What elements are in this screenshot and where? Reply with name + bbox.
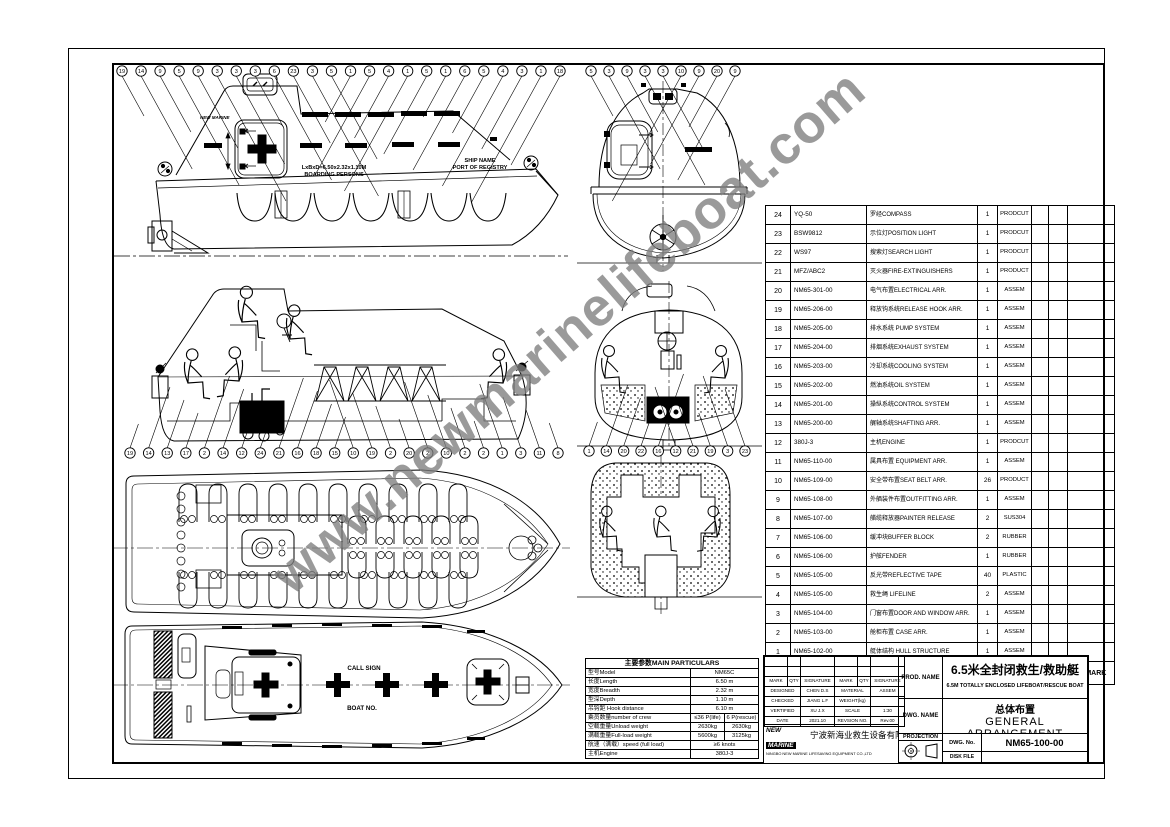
callout-number: 1 xyxy=(444,69,447,75)
callout-number: 5 xyxy=(178,69,181,75)
side-view-callouts: 1914959333623351541516543118 xyxy=(117,66,565,202)
parts-cell-name: 操纵系统CONTROL SYSTEM xyxy=(867,396,978,415)
seat-circle xyxy=(462,552,469,559)
parts-cell-rem xyxy=(1068,453,1115,472)
parts-cell-rem xyxy=(1068,377,1115,396)
callout-leader-line xyxy=(472,76,541,202)
projection-label: PROJECTION xyxy=(899,734,942,741)
cockpit-section-view: 114202216122119323 xyxy=(577,281,762,457)
callout-leader-line xyxy=(312,76,378,196)
parts-table-row: 12380J-3主机ENGINE1PRODCUT xyxy=(766,434,1115,453)
parts-cell-wt xyxy=(1049,453,1068,472)
parts-cell-code: NM65-106-00 xyxy=(791,529,867,548)
projection-symbol-icon xyxy=(899,741,943,761)
callout-number: 15 xyxy=(332,451,338,457)
seat-circle xyxy=(219,516,226,523)
callout-number: 9 xyxy=(159,69,162,75)
parts-cell-code: NM65-107-00 xyxy=(791,510,867,529)
parts-cell-name: 艏缆释放器PAINTER RELEASE xyxy=(867,510,978,529)
parts-cell-rem xyxy=(1068,415,1115,434)
seated-person-figure xyxy=(286,305,312,355)
parts-cell-rem xyxy=(1068,586,1115,605)
parts-cell-rem xyxy=(1068,434,1115,453)
parts-cell-mat: ASSEM xyxy=(998,396,1032,415)
callout-number: 16 xyxy=(294,451,300,457)
parts-cell-name: 排水系统 PUMP SYSTEM xyxy=(867,320,978,339)
parts-cell-code: NM65-301-00 xyxy=(791,282,867,301)
seat-circle xyxy=(309,516,316,523)
dwg-name-cell: 总体布置 GENERAL ARRANGEMENT xyxy=(942,698,1088,734)
parts-cell-code: YQ-50 xyxy=(791,206,867,225)
parts-cell-qty: 1 xyxy=(978,377,998,396)
parts-cell-no: 5 xyxy=(766,567,791,586)
callout-leader-line xyxy=(399,419,409,448)
signature-row: CHECKEDJIANG L.FWEIGHT(kg) xyxy=(765,697,905,707)
title-block: MARKQTYSIGNATUREMARKQTYSIGNATUREDESIGNED… xyxy=(763,655,1089,764)
particulars-value: 380J-3 xyxy=(691,750,758,758)
parts-cell-code: BSW9812 xyxy=(791,225,867,244)
particulars-value: ≤36 P(life) xyxy=(691,714,725,722)
parts-cell-mat: PLASTIC xyxy=(998,567,1032,586)
particulars-label: 乘员数量number of crew xyxy=(586,714,691,722)
parts-cell-rem xyxy=(1068,225,1115,244)
parts-cell-wt xyxy=(1049,624,1068,643)
parts-cell-name: 外舾装件布置OUTFITTING ARR. xyxy=(867,491,978,510)
callout-leader-line xyxy=(297,391,317,448)
callout-number: 12 xyxy=(239,451,245,457)
parts-cell-name: 属具布置 EQUIPMENT ARR. xyxy=(867,453,978,472)
callout-number: 5 xyxy=(330,69,333,75)
parts-cell-ws xyxy=(1032,472,1049,491)
parts-cell-name: 舱柜布置 CASE ARR. xyxy=(867,624,978,643)
parts-cell-no: 2 xyxy=(766,624,791,643)
callout-leader-line xyxy=(255,76,283,127)
vent-grille xyxy=(154,631,172,678)
parts-cell-code: MFZ/ABC2 xyxy=(791,263,867,282)
parts-cell-qty: 1 xyxy=(978,434,998,453)
folding-seat-frames xyxy=(314,365,446,401)
particulars-value: 2630kg xyxy=(725,723,758,731)
parts-cell-mat: SUS304 xyxy=(998,510,1032,529)
parts-cell-ws xyxy=(1032,415,1049,434)
side-window xyxy=(685,147,712,152)
parts-cell-qty: 1 xyxy=(978,415,998,434)
parts-cell-mat: ASSEM xyxy=(998,377,1032,396)
parts-cell-mat: ASSEM xyxy=(998,605,1032,624)
disk-file-label: DISK FILE xyxy=(942,751,982,763)
parts-cell-no: 23 xyxy=(766,225,791,244)
seat-circle xyxy=(414,552,421,559)
parts-cell-code: NM65-106-00 xyxy=(791,548,867,567)
callout-number: 3 xyxy=(254,69,257,75)
parts-cell-code: NM65-205-00 xyxy=(791,320,867,339)
parts-cell-wt xyxy=(1049,605,1068,624)
parts-table-row: 21MFZ/ABC2灭火器FIRE-EXTINGUISHERS1PRODUCT xyxy=(766,263,1115,282)
revision-empty-row xyxy=(765,657,905,667)
parts-cell-no: 9 xyxy=(766,491,791,510)
particulars-label: 满载重量Full-load weight xyxy=(586,732,691,740)
callout-number: 19 xyxy=(369,451,375,457)
seat-circle xyxy=(211,516,218,523)
seat-outlines xyxy=(179,484,478,608)
parts-cell-rem xyxy=(1068,529,1115,548)
product-name-cn: 6.5米全封闭救生/救助艇 xyxy=(943,661,1087,678)
side-door-icon xyxy=(235,120,287,178)
parts-cell-no: 14 xyxy=(766,396,791,415)
callout-number: 17 xyxy=(183,451,189,457)
parts-cell-rem xyxy=(1068,320,1115,339)
vent-grille xyxy=(154,692,172,738)
parts-cell-name: 罗经COMPASS xyxy=(867,206,978,225)
particulars-value: 1.10 m xyxy=(691,696,758,704)
seat-circle xyxy=(301,516,308,523)
dwg-name-label: DWG. NAME xyxy=(898,698,943,734)
callout-leader-line xyxy=(160,76,191,132)
parts-cell-qty: 1 xyxy=(978,244,998,263)
callout-leader-line xyxy=(413,76,465,170)
seat-circle xyxy=(211,572,218,579)
callout-number: 1 xyxy=(501,451,504,457)
parts-cell-qty: 40 xyxy=(978,567,998,586)
seat-circle xyxy=(189,516,196,523)
revision-empty-cell xyxy=(788,657,801,667)
particulars-label: 型号Model xyxy=(586,669,691,677)
parts-cell-rem xyxy=(1068,548,1115,567)
deck-hatch xyxy=(467,659,509,705)
parts-cell-mat: ASSEM xyxy=(998,339,1032,358)
parts-table-row: 10NM65-109-00安全带布置SEAT BELT ARR.26PRODUC… xyxy=(766,472,1115,491)
parts-cell-code: NM65-105-00 xyxy=(791,586,867,605)
front-view: 53933109209 xyxy=(577,63,762,280)
seat-circle xyxy=(378,538,385,545)
revision-empty-cell xyxy=(835,657,858,667)
parts-cell-mat: ASSEM xyxy=(998,282,1032,301)
particulars-value: 6.50 m xyxy=(691,678,758,686)
fender-scallops xyxy=(237,193,506,221)
particulars-value: 3125kg xyxy=(725,732,758,740)
parts-table-row: 15NM65-202-00燃油系统OIL SYSTEM1ASSEM xyxy=(766,377,1115,396)
callout-leader-line xyxy=(405,382,428,448)
parts-cell-code: NM65-104-00 xyxy=(791,605,867,624)
parts-table-row: 18NM65-205-00排水系统 PUMP SYSTEM1ASSEM xyxy=(766,320,1115,339)
seat-outline xyxy=(376,516,394,544)
parts-cell-qty: 1 xyxy=(978,263,998,282)
parts-cell-qty: 1 xyxy=(978,624,998,643)
parts-cell-mat: ASSEM xyxy=(998,301,1032,320)
parts-cell-mat: RUBBER xyxy=(998,548,1032,567)
console-plan xyxy=(227,515,342,575)
revision-empty-cell xyxy=(801,657,835,667)
signature-table: MARKQTYSIGNATUREMARKQTYSIGNATUREDESIGNED… xyxy=(764,656,905,727)
callout-leader-line xyxy=(141,76,192,169)
callout-leader-line xyxy=(122,76,144,116)
call-sign-label: CALL SIGN xyxy=(347,665,381,672)
parts-table-row: 7NM65-106-00缓冲块BUFFER BLOCK2RUBBER xyxy=(766,529,1115,548)
parts-cell-qty: 1 xyxy=(978,320,998,339)
callout-number: 5 xyxy=(482,69,485,75)
callout-leader-line xyxy=(376,406,391,448)
parts-cell-wt xyxy=(1049,396,1068,415)
seat-circle xyxy=(181,572,188,579)
parts-cell-ws xyxy=(1032,510,1049,529)
parts-table-row: 20NM65-301-00电气布置ELECTRICAL ARR.1ASSEM xyxy=(766,282,1115,301)
callout-leader-line xyxy=(482,76,522,149)
parts-cell-code: NM65-202-00 xyxy=(791,377,867,396)
stern-hatch xyxy=(178,634,196,678)
parts-cell-rem xyxy=(1068,605,1115,624)
seat-outline xyxy=(348,516,366,544)
callout-number: 9 xyxy=(733,69,736,75)
parts-table-row: 6NM65-106-00护舷FENDER1RUBBER xyxy=(766,548,1115,567)
signature-row: DESIGNEDCHEN D.SMATERIALASSEM xyxy=(765,687,905,697)
revision-empty-cell xyxy=(858,657,871,667)
callout-number: 2 xyxy=(482,451,485,457)
revision-empty-cell xyxy=(858,667,871,677)
parts-cell-wt xyxy=(1049,358,1068,377)
parts-cell-mat: PRODCUT xyxy=(998,244,1032,263)
callout-leader-line xyxy=(179,76,239,185)
seat-circle xyxy=(241,516,248,523)
parts-cell-qty: 26 xyxy=(978,472,998,491)
seat-circle xyxy=(279,516,286,523)
callout-number: 14 xyxy=(145,451,151,457)
parts-cell-ws xyxy=(1032,396,1049,415)
parts-cell-mat: ASSEM xyxy=(998,415,1032,434)
parts-cell-wt xyxy=(1049,263,1068,282)
callout-leader-line xyxy=(689,76,717,127)
parts-cell-mat: ASSEM xyxy=(998,586,1032,605)
callout-number: 18 xyxy=(313,451,319,457)
parts-cell-wt xyxy=(1049,548,1068,567)
parts-cell-mat: ASSEM xyxy=(998,320,1032,339)
seat-circle xyxy=(219,572,226,579)
parts-cell-mat: PRODUCT xyxy=(998,263,1032,282)
parts-cell-mat: ASSEM xyxy=(998,453,1032,472)
boat-logo-label: NEW MARINE xyxy=(200,115,230,120)
parts-cell-rem xyxy=(1068,301,1115,320)
parts-cell-rem xyxy=(1068,396,1115,415)
callout-number: 2 xyxy=(203,451,206,457)
seat-circle xyxy=(451,572,458,579)
parts-cell-qty: 1 xyxy=(978,548,998,567)
parts-cell-ws xyxy=(1032,301,1049,320)
deck-plan-view: CALL SIGN BOAT NO. xyxy=(112,618,570,764)
parts-cell-rem xyxy=(1068,263,1115,282)
callout-leader-line xyxy=(204,376,229,448)
parts-cell-no: 18 xyxy=(766,320,791,339)
parts-cell-ws xyxy=(1032,377,1049,396)
parts-cell-qty: 1 xyxy=(978,491,998,510)
parts-cell-code: NM65-204-00 xyxy=(791,339,867,358)
parts-cell-mat: PRODCUT xyxy=(998,206,1032,225)
parts-cell-code: NM65-105-00 xyxy=(791,567,867,586)
seat-circle xyxy=(350,552,357,559)
parts-cell-name: 反光带REFLECTIVE TAPE xyxy=(867,567,978,586)
port-of-registry-label: PORT OF REGISTRY xyxy=(453,165,508,171)
signature-cell: CHEN D.S xyxy=(801,687,835,697)
parts-cell-no: 7 xyxy=(766,529,791,548)
callout-number: 14 xyxy=(138,69,144,75)
callout-leader-line xyxy=(612,76,681,201)
callout-leader-line xyxy=(526,410,539,448)
particulars-row: 满载重量Full-load weight5600kg3125kg xyxy=(586,732,758,741)
parts-cell-ws xyxy=(1032,624,1049,643)
parts-cell-rem xyxy=(1068,510,1115,529)
parts-cell-qty: 2 xyxy=(978,586,998,605)
callout-number: 8 xyxy=(556,451,559,457)
parts-cell-no: 8 xyxy=(766,510,791,529)
callout-leader-line xyxy=(316,404,331,448)
center-case xyxy=(645,555,677,597)
callout-number: 10 xyxy=(443,451,449,457)
callout-leader-line xyxy=(428,395,447,448)
parts-cell-wt xyxy=(1049,510,1068,529)
callout-number: 10 xyxy=(350,451,356,457)
parts-table-row: 4NM65-105-00救生绳 LIFELINE2ASSEM xyxy=(766,586,1115,605)
projection-cell: PROJECTION xyxy=(898,733,943,763)
callout-number: 20 xyxy=(406,451,412,457)
seat-circle xyxy=(378,552,385,559)
callout-number: 19 xyxy=(127,451,133,457)
parts-table-row: 5NM65-105-00反光带REFLECTIVE TAPE40PLASTIC xyxy=(766,567,1115,586)
signature-cell: VERTIFIED xyxy=(765,707,801,717)
callout-number: 9 xyxy=(697,69,700,75)
parts-cell-code: NM65-201-00 xyxy=(791,396,867,415)
parts-cell-wt xyxy=(1049,320,1068,339)
seat-circle xyxy=(429,572,436,579)
callout-number: 21 xyxy=(276,451,282,457)
seat-circle xyxy=(271,516,278,523)
callout-number: 3 xyxy=(519,451,522,457)
parts-cell-ws xyxy=(1032,491,1049,510)
signature-cell: SCALE xyxy=(835,707,871,717)
callout-leader-line xyxy=(130,424,138,448)
seat-circle xyxy=(331,516,338,523)
parts-table-row: 3NM65-104-00门窗布置DOOR AND WINDOW ARR.1ASS… xyxy=(766,605,1115,624)
callout-leader-line xyxy=(678,76,735,180)
parts-cell-no: 3 xyxy=(766,605,791,624)
seat-circle xyxy=(249,516,256,523)
prod-name-label: PROD. NAME xyxy=(898,656,943,699)
particulars-value: NM65C xyxy=(691,669,758,677)
parts-cell-ws xyxy=(1032,206,1049,225)
parts-cell-ws xyxy=(1032,225,1049,244)
parts-cell-no: 4 xyxy=(766,586,791,605)
parts-cell-code: NM65-203-00 xyxy=(791,358,867,377)
seat-outline xyxy=(348,552,366,578)
callout-number: 10 xyxy=(678,69,684,75)
particulars-label: 主机Engine xyxy=(586,750,691,758)
signature-header-row: MARKQTYSIGNATUREMARKQTYSIGNATURE xyxy=(765,677,905,687)
seat-outline xyxy=(432,552,450,578)
callout-leader-line xyxy=(503,397,521,448)
parts-cell-no: 12 xyxy=(766,434,791,453)
callout-number: 5 xyxy=(368,69,371,75)
hook-gear xyxy=(152,361,530,398)
prod-name-cell: 6.5米全封闭救生/救助艇 6.5M TOTALLY ENCLOSED LIFE… xyxy=(942,656,1088,699)
signature-header-cell: SIGNATURE xyxy=(801,677,835,687)
parts-table-row: 11NM65-110-00属具布置 EQUIPMENT ARR.1ASSEM xyxy=(766,453,1115,472)
parts-cell-mat: PRODUCT xyxy=(998,472,1032,491)
seat-circle xyxy=(470,538,477,545)
seated-person-figure xyxy=(217,347,243,397)
parts-cell-rem xyxy=(1068,624,1115,643)
callout-leader-line xyxy=(589,422,597,446)
particulars-row: 主机Engine380J-3 xyxy=(586,750,758,758)
parts-cell-mat: PRODCUT xyxy=(998,434,1032,453)
parts-cell-ws xyxy=(1032,605,1049,624)
seat-circle xyxy=(350,538,357,545)
signature-cell: JIANG L.F xyxy=(801,697,835,707)
callout-number: 2 xyxy=(463,451,466,457)
callout-number: 4 xyxy=(501,69,504,75)
parts-cell-rem xyxy=(1068,244,1115,263)
seat-outline xyxy=(460,552,478,578)
callout-number: 1 xyxy=(349,69,352,75)
parts-cell-ws xyxy=(1032,548,1049,567)
callout-leader-line xyxy=(198,76,238,148)
front-door-icon xyxy=(604,121,653,179)
signature-row: VERTIFIEDXU J.XSCALE1:30 xyxy=(765,707,905,717)
parts-table-row: 8NM65-107-00艏缆释放器PAINTER RELEASE2SUS304 xyxy=(766,510,1115,529)
dimension-arrow xyxy=(226,133,230,169)
cabin-roof-hatch xyxy=(205,646,301,720)
callout-leader-line xyxy=(549,423,558,448)
parts-cell-qty: 1 xyxy=(978,396,998,415)
ship-name-label: SHIP NAME xyxy=(465,158,496,164)
revision-empty-cell xyxy=(801,667,835,677)
parts-cell-name: 缓冲块BUFFER BLOCK xyxy=(867,529,978,548)
revision-empty-cell xyxy=(765,657,788,667)
drawing-sheet: NEW MARINE LxBxD=6.50x2.32x1.10M BOARDIN… xyxy=(0,0,1170,827)
seating-plan-view xyxy=(112,460,570,618)
parts-cell-qty: 1 xyxy=(978,282,998,301)
parts-cell-wt xyxy=(1049,529,1068,548)
hull-plan-outline xyxy=(126,470,560,618)
parts-cell-name: 冷却系统COOLING SYSTEM xyxy=(867,358,978,377)
parts-cell-wt xyxy=(1049,339,1068,358)
parts-cell-qty: 1 xyxy=(978,225,998,244)
parts-cell-ws xyxy=(1032,263,1049,282)
disk-file-value xyxy=(981,751,1088,763)
seat-circle xyxy=(442,538,449,545)
callout-leader-line xyxy=(355,76,389,138)
company-name-en: NINGBO NEW MARINE LIFESAVING EQUIPMENT C… xyxy=(766,751,896,756)
callout-number: 5 xyxy=(589,69,592,75)
parts-cell-wt xyxy=(1049,434,1068,453)
callout-number: 6 xyxy=(463,69,466,75)
seat-outline xyxy=(432,516,450,544)
parts-table-row: 24YQ-50罗经COMPASS1PRODCUT xyxy=(766,206,1115,225)
seat-circle xyxy=(189,572,196,579)
company-name-cn: 宁波新海业救生设备有限公司 xyxy=(810,729,898,741)
seat-circle xyxy=(369,516,376,523)
signature-header-cell: MARK xyxy=(765,677,788,687)
callout-number: 1 xyxy=(539,69,542,75)
callout-number: 4 xyxy=(387,69,390,75)
parts-cell-ws xyxy=(1032,282,1049,301)
callout-number: 14 xyxy=(220,451,226,457)
signature-cell: MATERIAL xyxy=(835,687,871,697)
callout-number: 1 xyxy=(406,69,409,75)
lifting-crosses xyxy=(326,673,448,697)
parts-cell-ws xyxy=(1032,339,1049,358)
parts-table-row: 9NM65-108-00外舾装件布置OUTFITTING ARR.1ASSEM xyxy=(766,491,1115,510)
callout-leader-line xyxy=(480,384,502,448)
parts-table-row: 16NM65-203-00冷却系统COOLING SYSTEM1ASSEM xyxy=(766,358,1115,377)
boarding-persons-label: BOARDING PERSONS xyxy=(304,172,364,178)
callout-leader-line xyxy=(474,421,483,448)
